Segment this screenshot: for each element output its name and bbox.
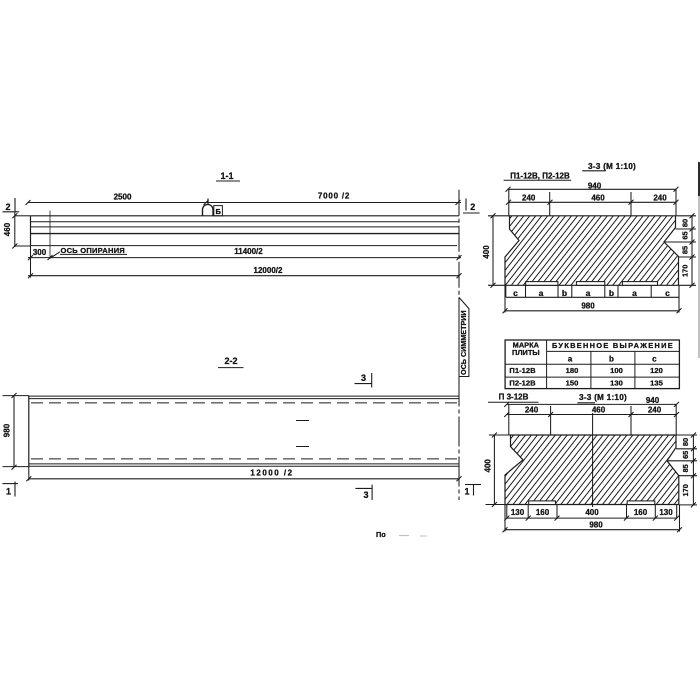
svg-text:12000 /2: 12000 /2 (250, 468, 293, 477)
svg-text:3: 3 (361, 373, 366, 383)
svg-text:2-2: 2-2 (224, 356, 237, 366)
svg-text:980: 980 (581, 302, 595, 311)
svg-text:160: 160 (634, 508, 648, 517)
svg-text:П2-12В: П2-12В (509, 379, 536, 388)
svg-text:2500: 2500 (114, 193, 132, 202)
svg-text:1: 1 (6, 487, 11, 497)
svg-text:180: 180 (566, 366, 579, 375)
svg-text:240: 240 (525, 406, 539, 415)
svg-text:1: 1 (464, 487, 469, 497)
svg-text:65: 65 (681, 451, 690, 459)
svg-text:80: 80 (681, 219, 690, 227)
svg-text:130: 130 (659, 508, 673, 517)
svg-text:130: 130 (511, 508, 525, 517)
svg-text:980: 980 (3, 423, 12, 437)
svg-text:170: 170 (681, 265, 690, 277)
svg-text:130: 130 (610, 379, 623, 388)
svg-text:460: 460 (591, 194, 605, 203)
svg-text:a: a (539, 288, 544, 298)
svg-text:980: 980 (589, 521, 603, 530)
svg-text:3: 3 (363, 490, 368, 500)
svg-text:П 3-12В: П 3-12В (499, 393, 529, 402)
svg-text:a: a (632, 288, 637, 298)
svg-text:150: 150 (566, 379, 579, 388)
svg-text:a: a (568, 354, 573, 363)
svg-text:Б: Б (216, 207, 222, 216)
svg-text:400: 400 (585, 508, 599, 517)
svg-text:ОСЬ ОПИРАНИЯ: ОСЬ ОПИРАНИЯ (61, 246, 125, 255)
svg-text:65: 65 (681, 231, 690, 239)
svg-text:c: c (652, 354, 657, 363)
svg-text:460: 460 (592, 406, 606, 415)
svg-text:240: 240 (522, 194, 536, 203)
svg-text:БУКВЕННОЕ ВЫРАЖЕНИЕ: БУКВЕННОЕ ВЫРАЖЕНИЕ (552, 341, 674, 350)
svg-text:400: 400 (482, 245, 491, 259)
svg-text:1-1: 1-1 (220, 171, 233, 181)
svg-text:b: b (609, 288, 614, 298)
svg-text:П1-12В, П2-12В: П1-12В, П2-12В (510, 171, 570, 180)
svg-text:100: 100 (610, 366, 623, 375)
svg-text:По: По (376, 530, 386, 539)
svg-text:940: 940 (646, 396, 660, 405)
svg-text:7000 /2: 7000 /2 (318, 192, 350, 201)
svg-text:П1-12В: П1-12В (509, 366, 536, 375)
svg-text:120: 120 (650, 366, 663, 375)
svg-text:3-3 (М 1:10): 3-3 (М 1:10) (588, 161, 636, 171)
svg-text:a: a (586, 288, 591, 298)
svg-text:12000/2: 12000/2 (254, 266, 283, 275)
svg-text:b: b (609, 354, 614, 363)
svg-text:ПЛИТЫ: ПЛИТЫ (512, 348, 540, 357)
svg-text:940: 940 (588, 181, 602, 190)
svg-text:c: c (513, 288, 518, 298)
svg-text:460: 460 (3, 222, 12, 236)
svg-text:85: 85 (681, 464, 690, 472)
svg-text:80: 80 (681, 438, 690, 446)
svg-text:135: 135 (650, 379, 663, 388)
svg-text:3-3 (М 1:10): 3-3 (М 1:10) (579, 392, 627, 402)
svg-text:170: 170 (681, 484, 690, 496)
svg-text:85: 85 (681, 246, 690, 254)
svg-text:240: 240 (648, 406, 662, 415)
svg-text:240: 240 (653, 194, 667, 203)
svg-text:2: 2 (470, 202, 475, 212)
svg-text:c: c (665, 288, 670, 298)
svg-text:ОСЬ СИММЕТРИИ: ОСЬ СИММЕТРИИ (459, 310, 468, 375)
svg-text:160: 160 (536, 508, 550, 517)
svg-text:11400/2: 11400/2 (234, 247, 263, 256)
svg-text:300: 300 (33, 248, 47, 257)
svg-text:2: 2 (5, 202, 10, 212)
svg-text:400: 400 (484, 459, 493, 473)
svg-text:b: b (562, 288, 567, 298)
